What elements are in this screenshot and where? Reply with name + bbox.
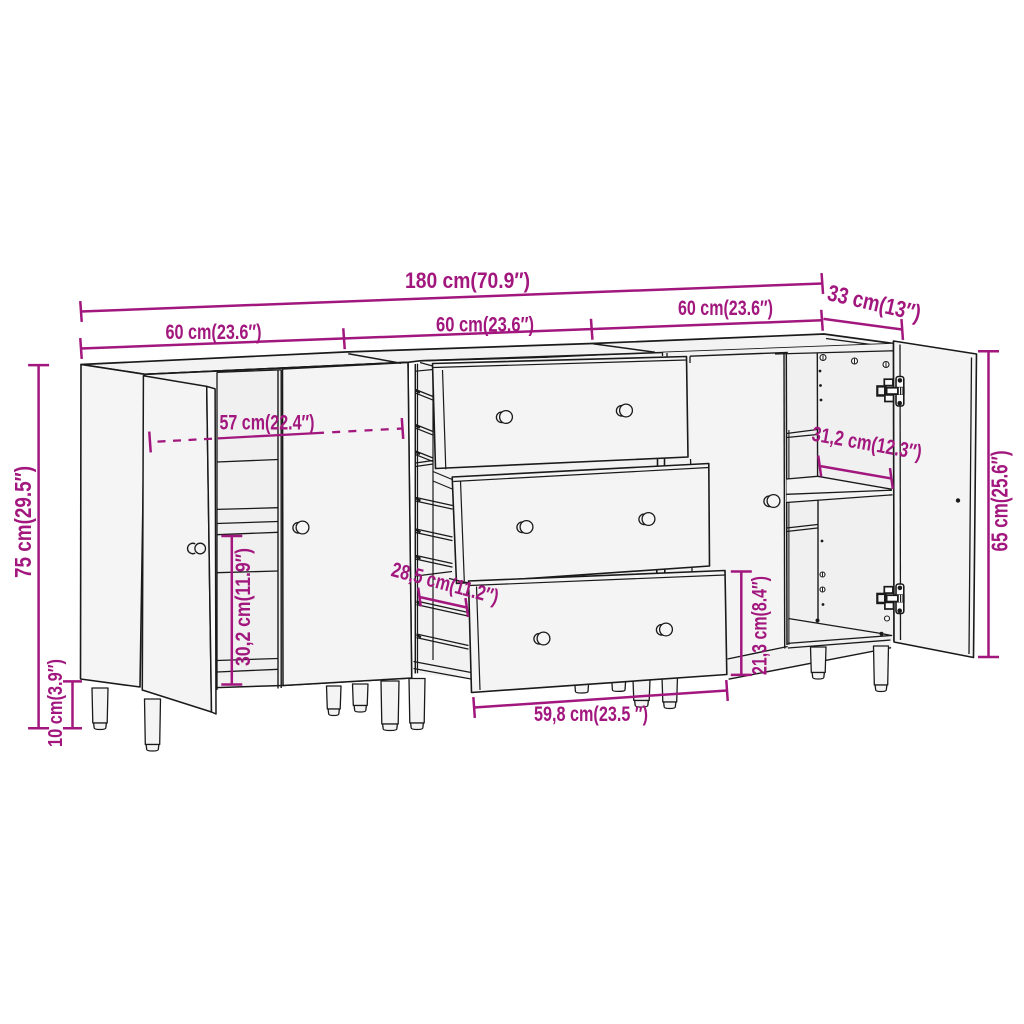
svg-text:59,8 cm(23.5 ″): 59,8 cm(23.5 ″) [534,703,648,726]
svg-text:60 cm(23.6″): 60 cm(23.6″) [166,321,262,344]
svg-text:65 cm(25.6″): 65 cm(25.6″) [987,451,1013,552]
svg-text:21,3 cm(8.4″): 21,3 cm(8.4″) [749,576,772,675]
svg-text:57 cm(22.4″): 57 cm(22.4″) [220,412,315,435]
svg-text:75 cm(29.5″): 75 cm(29.5″) [10,466,36,578]
svg-text:60 cm(23.6″): 60 cm(23.6″) [678,297,773,320]
svg-text:30,2 cm(11.9″): 30,2 cm(11.9″) [232,548,255,666]
svg-text:180 cm(70.9″): 180 cm(70.9″) [405,268,530,293]
svg-text:10 cm(3.9″): 10 cm(3.9″) [45,659,67,747]
svg-text:60 cm(23.6″): 60 cm(23.6″) [436,314,534,337]
